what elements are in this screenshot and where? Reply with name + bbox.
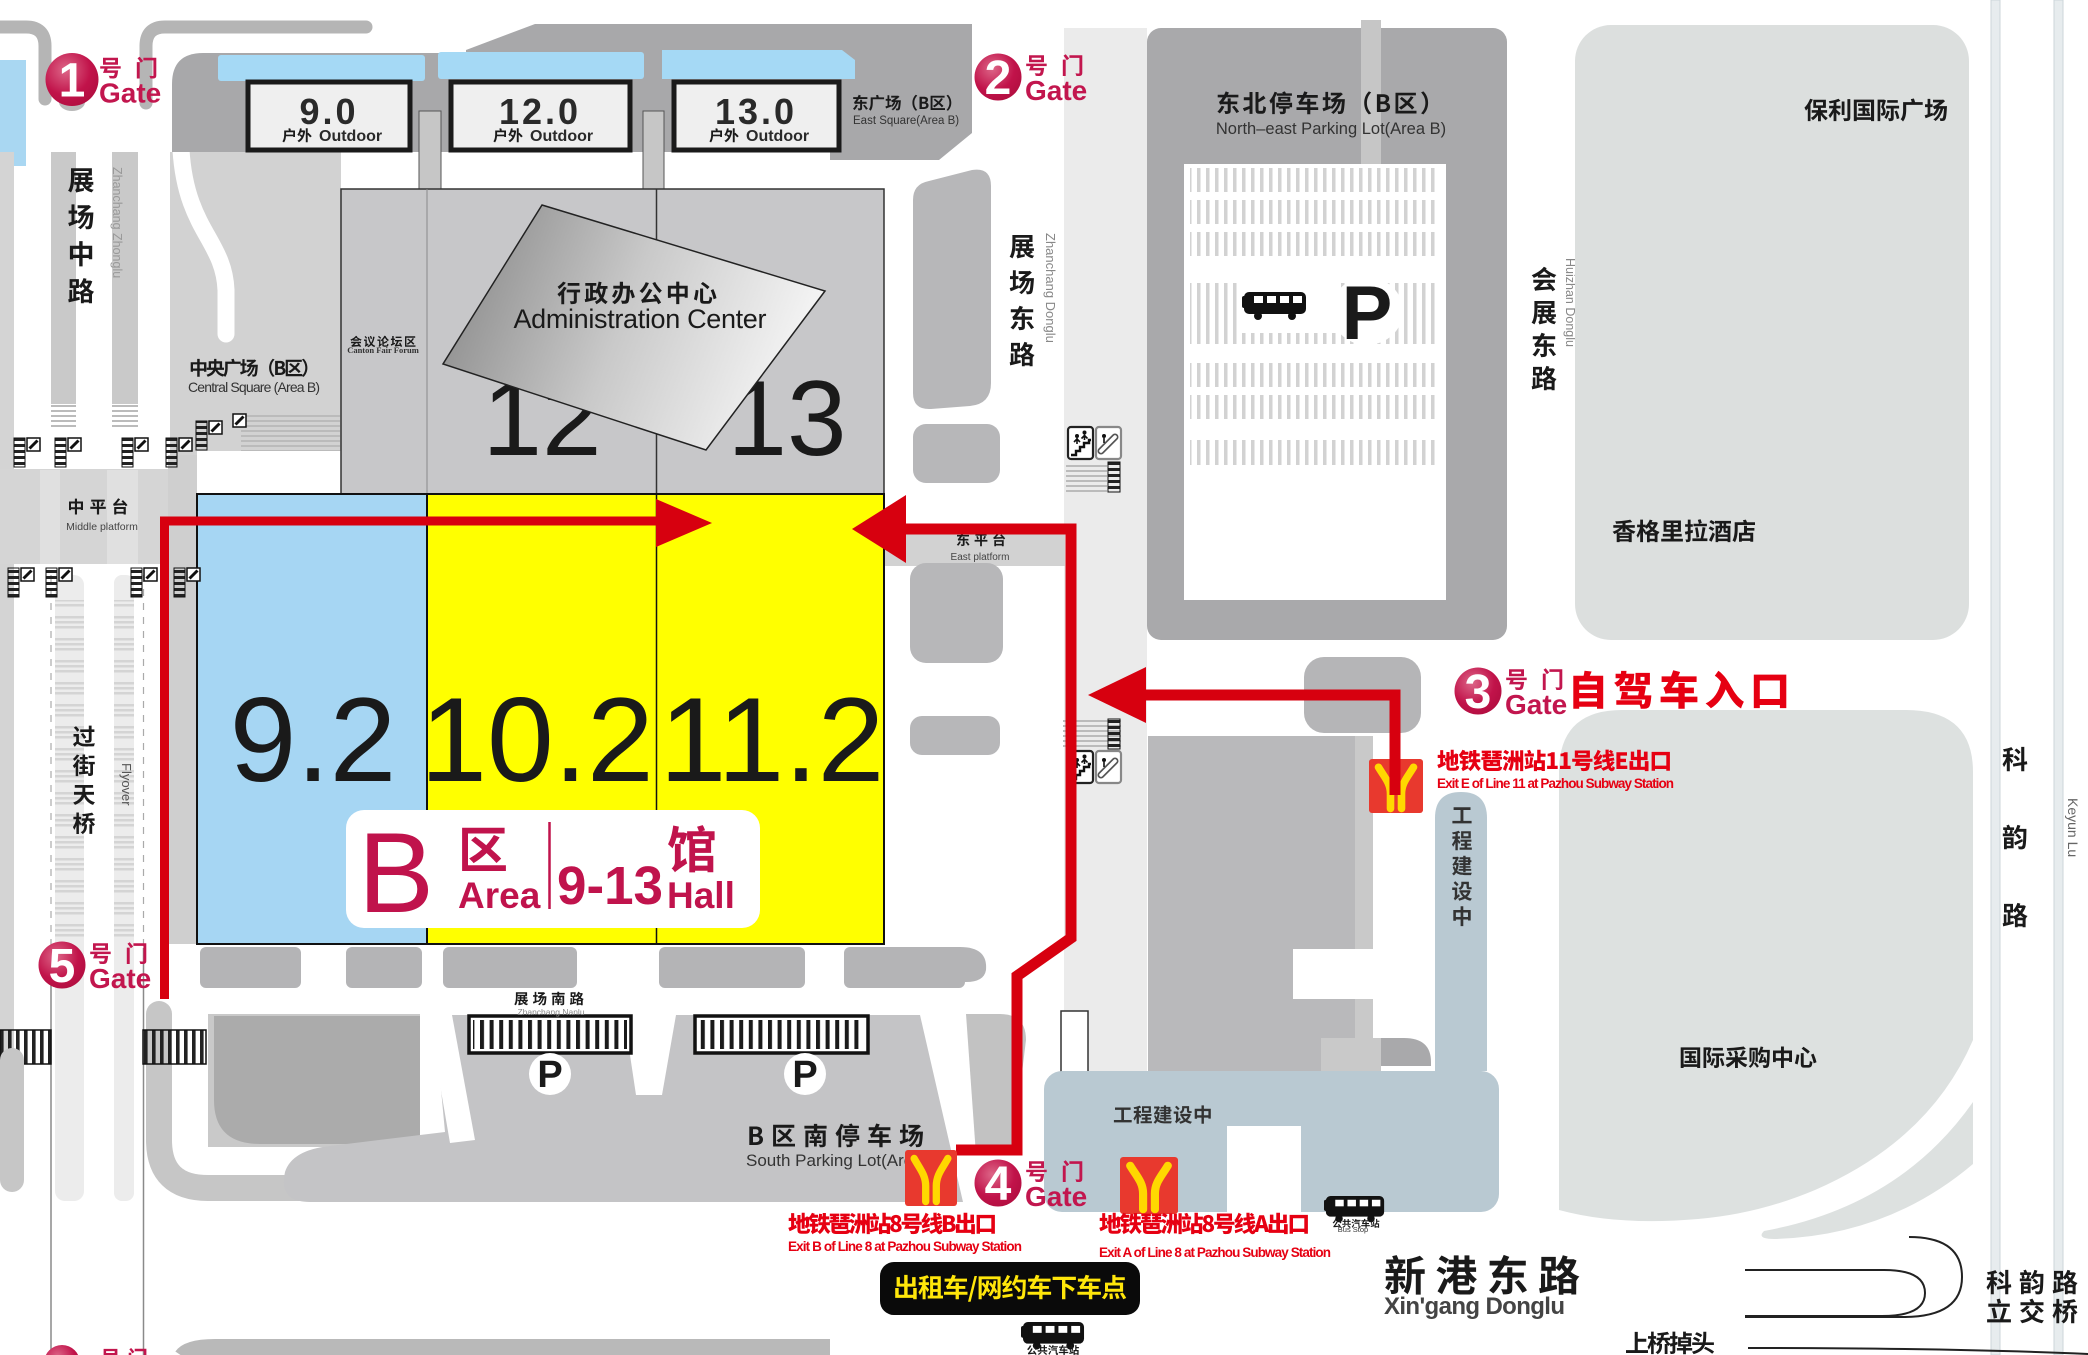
- svg-text:4: 4: [985, 1158, 1012, 1211]
- svg-text:9.2: 9.2: [230, 673, 397, 807]
- svg-text:Xin'gang Donglu: Xin'gang Donglu: [1384, 1293, 1565, 1320]
- svg-text:5: 5: [49, 940, 76, 993]
- svg-text:3: 3: [1465, 666, 1492, 719]
- svg-text:Exit B of Line 8 at Pazhou Sub: Exit B of Line 8 at Pazhou Subway Statio…: [788, 1239, 1022, 1254]
- svg-text:Exit E of Line 11 at Pazhou Su: Exit E of Line 11 at Pazhou Subway Stati…: [1437, 776, 1674, 791]
- svg-text:Hall: Hall: [667, 875, 735, 916]
- svg-text:Zhanchang Nanlu: Zhanchang Nanlu: [517, 1007, 584, 1017]
- svg-text:Flyover: Flyover: [119, 763, 134, 806]
- svg-text:East platform: East platform: [951, 552, 1010, 563]
- svg-text:North–east Parking Lot(Area B): North–east Parking Lot(Area B): [1216, 120, 1446, 138]
- svg-text:B: B: [358, 810, 434, 937]
- svg-text:Outdoor: Outdoor: [746, 128, 809, 145]
- svg-text:Administration Center: Administration Center: [514, 304, 767, 334]
- svg-text:P: P: [792, 1054, 817, 1096]
- svg-text:Gate: Gate: [89, 963, 151, 994]
- svg-text:Gate: Gate: [1025, 75, 1087, 106]
- svg-text:Outdoor: Outdoor: [319, 128, 382, 145]
- svg-text:Central Square (Area B): Central Square (Area B): [188, 379, 320, 395]
- svg-text:Keyun Lu: Keyun Lu: [2065, 798, 2081, 857]
- svg-text:12.0: 12.0: [499, 91, 581, 132]
- svg-text:2: 2: [985, 52, 1012, 105]
- svg-text:Exit A of Line 8 at Pazhou Sub: Exit A of Line 8 at Pazhou Subway Statio…: [1099, 1245, 1331, 1260]
- svg-text:Outdoor: Outdoor: [530, 128, 593, 145]
- svg-text:Huizhan Donglu: Huizhan Donglu: [1563, 258, 1577, 347]
- svg-text:Gate: Gate: [1025, 1181, 1087, 1212]
- svg-text:Canton Fair Forum: Canton Fair Forum: [347, 345, 419, 355]
- svg-text:Gate: Gate: [99, 78, 161, 109]
- svg-text:East Square(Area B): East Square(Area B): [853, 115, 959, 127]
- svg-text:1: 1: [59, 55, 86, 108]
- svg-text:P: P: [537, 1054, 562, 1096]
- svg-text:11.2: 11.2: [660, 673, 885, 807]
- svg-text:Zhanchang Zhonglu: Zhanchang Zhonglu: [110, 167, 124, 278]
- svg-text:9.0: 9.0: [299, 91, 358, 132]
- svg-text:10.2: 10.2: [420, 673, 654, 807]
- svg-text:Bus Stop: Bus Stop: [1338, 1225, 1368, 1234]
- svg-text:Middle platform: Middle platform: [66, 521, 138, 533]
- svg-text:13.0: 13.0: [715, 91, 797, 132]
- svg-text:9-13: 9-13: [557, 856, 663, 916]
- svg-text:Gate: Gate: [1505, 689, 1567, 720]
- svg-text:Area: Area: [458, 875, 541, 916]
- svg-text:South Parking Lot(Area: South Parking Lot(Area: [746, 1151, 923, 1170]
- svg-text:P: P: [1342, 271, 1393, 356]
- svg-text:Zhanchang Donglu: Zhanchang Donglu: [1043, 233, 1058, 343]
